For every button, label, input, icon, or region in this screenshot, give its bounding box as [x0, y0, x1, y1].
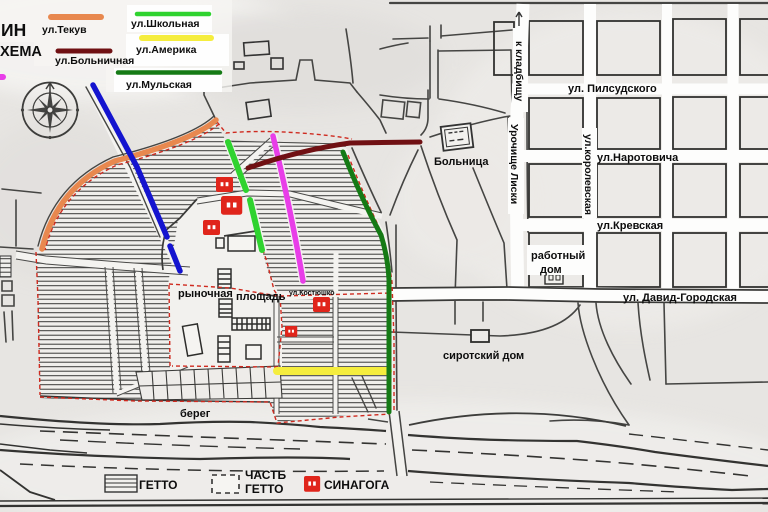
svg-text:ул.Мульская: ул.Мульская	[126, 79, 192, 91]
svg-text:ул. Пилсудского: ул. Пилсудского	[568, 83, 657, 95]
svg-text:ул.королевская: ул.королевская	[582, 134, 594, 215]
svg-text:ул.Кревская: ул.Кревская	[597, 220, 663, 232]
svg-text:ИН: ИН	[1, 20, 26, 40]
svg-text:рыночная: рыночная	[178, 288, 233, 300]
svg-text:ул. Давид-Городская: ул. Давид-Городская	[623, 292, 737, 304]
svg-text:ул.Америка: ул.Америка	[136, 44, 197, 56]
svg-text:к кладбищу: к кладбищу	[513, 41, 525, 102]
svg-text:ХЕМА: ХЕМА	[0, 44, 42, 60]
svg-text:СИНАГОГА: СИНАГОГА	[324, 478, 390, 492]
svg-text:ул.Наротовича: ул.Наротовича	[597, 152, 679, 164]
svg-text:ул.Текув: ул.Текув	[42, 24, 87, 36]
svg-text:площадь: площадь	[236, 291, 286, 303]
svg-text:сиротский дом: сиротский дом	[443, 350, 524, 362]
svg-text:ГЕТТО: ГЕТТО	[245, 482, 284, 496]
svg-text:Больница: Больница	[434, 156, 489, 168]
svg-text:ЧАСТЬ: ЧАСТЬ	[245, 468, 286, 482]
svg-text:ГЕТТО: ГЕТТО	[139, 478, 178, 492]
svg-text:работный: работный	[531, 250, 585, 262]
svg-text:берег: берег	[180, 408, 211, 420]
svg-text:Урочище Лиски: Урочище Лиски	[508, 124, 520, 204]
svg-text:ул.Больничная: ул.Больничная	[55, 55, 134, 67]
svg-text:ул.Школьная: ул.Школьная	[131, 18, 200, 30]
svg-text:ул.Костюшко: ул.Костюшко	[289, 290, 334, 297]
svg-text:дом: дом	[540, 264, 562, 276]
